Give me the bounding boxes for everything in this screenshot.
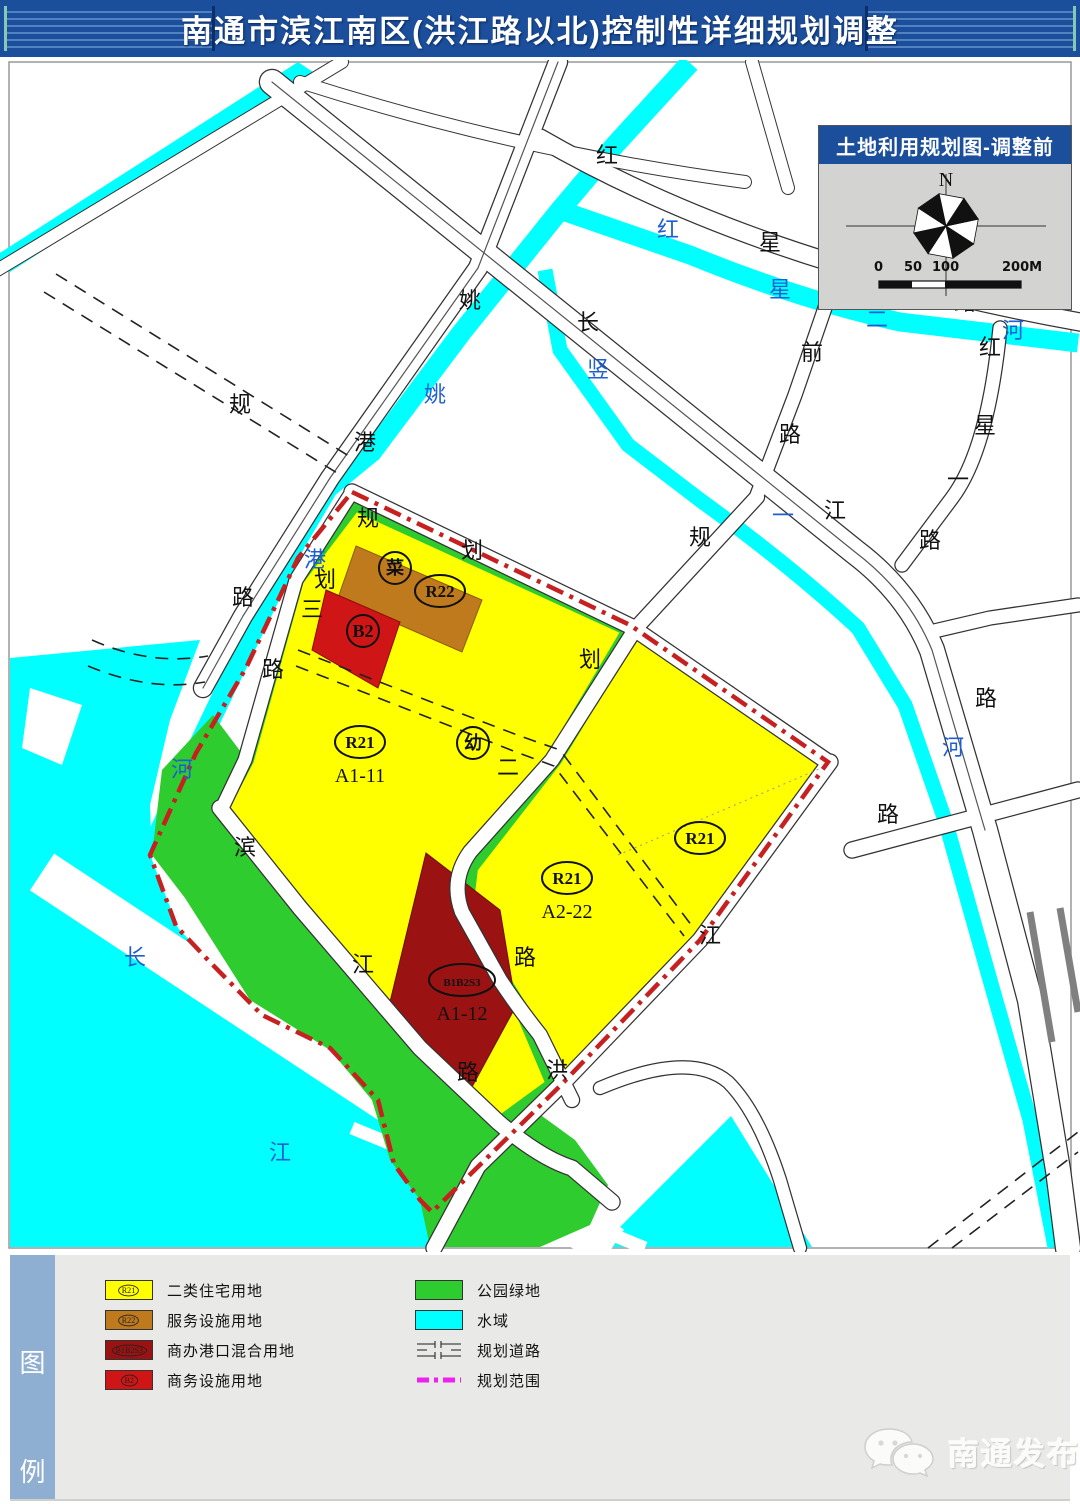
map-label: 竖: [587, 357, 609, 382]
legend-item: B2商务设施用地: [105, 1365, 295, 1395]
legend-label: 二类住宅用地: [167, 1280, 263, 1301]
map-label: 划: [579, 647, 601, 672]
map-label: 路: [262, 657, 284, 682]
legend-label: 公园绿地: [477, 1280, 541, 1301]
map-label: 路: [919, 528, 941, 553]
watermark-text: 南通发布: [948, 1429, 1080, 1474]
page-title: 南通市滨江南区(洪江路以北)控制性详细规划调整: [181, 6, 899, 51]
map-label: 路: [457, 1060, 479, 1085]
scale-tick: 100: [932, 260, 959, 275]
legend-item: 规划范围: [415, 1365, 541, 1395]
map-label: 二: [866, 307, 888, 332]
map-label: 路: [877, 802, 899, 827]
legend-column-2: 公园绿地水域规划道路规划范围: [415, 1275, 541, 1395]
map-label: 河: [1002, 318, 1024, 343]
map-label: 路: [975, 686, 997, 711]
map-label: 姚: [424, 382, 446, 407]
map-label: 路: [514, 945, 536, 970]
map-label: 红: [657, 217, 679, 242]
legend-label: 服务设施用地: [167, 1310, 263, 1331]
map-label: 三: [301, 597, 323, 622]
map-label: 红: [596, 143, 618, 168]
parcel-code: R21: [685, 829, 714, 848]
inset-body: N 0 50 100 200M: [819, 164, 1071, 309]
legend-swatch-color: R21: [105, 1280, 153, 1300]
legend-swatch-color: [415, 1280, 463, 1300]
legend-item: 规划道路: [415, 1335, 541, 1365]
map-label: 规: [689, 525, 711, 550]
map-label: 姚: [459, 288, 481, 313]
wechat-icon: [860, 1425, 938, 1477]
legend-label: 规划道路: [477, 1340, 541, 1361]
watermark: 南通发布: [860, 1425, 1080, 1477]
legend-sidebar-char: 图: [19, 1343, 45, 1380]
map-label: 江: [352, 952, 374, 977]
north-compass-rose: [914, 194, 979, 259]
map-label: 前: [801, 340, 823, 365]
parcel-subcode: A1-12: [436, 1003, 487, 1025]
legend-label: 商务设施用地: [167, 1370, 263, 1391]
map-label: 路: [779, 422, 801, 447]
legend-label: 商办港口混合用地: [167, 1340, 295, 1361]
map-label: 一: [772, 503, 794, 528]
legend-item: 水域: [415, 1305, 541, 1335]
legend-swatch-road: [415, 1340, 463, 1360]
parcel-code: B1B2S3: [443, 977, 481, 989]
north-label: N: [939, 169, 953, 191]
legend-sidebar: 图 例: [10, 1255, 55, 1499]
map-label: 规: [229, 392, 251, 417]
map-label: 河: [942, 735, 964, 760]
scale-tick: 50: [904, 260, 922, 275]
legend-label: 水域: [477, 1310, 509, 1331]
map-label: 江: [824, 498, 846, 523]
map-label: 河: [171, 757, 193, 782]
map-label: 港: [354, 430, 376, 455]
map-label: 星: [759, 230, 781, 255]
inset-panel: 土地利用规划图-调整前 N 0 50 100 200M: [818, 125, 1072, 310]
legend-swatch-boundary: [415, 1370, 463, 1390]
parcel-code: 幼: [464, 732, 482, 753]
compass-and-scale: N: [819, 164, 1071, 309]
legend-swatch-color: B1B2S3: [105, 1340, 153, 1360]
scale-tick: 200M: [1002, 260, 1042, 275]
parcel-subcode: A1-11: [335, 765, 385, 787]
legend-sidebar-char: 例: [19, 1452, 45, 1489]
parcel-code: B2: [352, 621, 373, 641]
map-label: 江: [699, 923, 721, 948]
map-label: 港: [304, 547, 326, 572]
inset-title: 土地利用规划图-调整前: [819, 126, 1071, 164]
legend-item: R22服务设施用地: [105, 1305, 295, 1335]
parcel-code: R21: [552, 869, 581, 888]
parcel-code: 菜: [385, 558, 404, 578]
legend-swatch-color: R22: [105, 1310, 153, 1330]
parcel-code: R21: [345, 733, 374, 752]
map-label: 一: [947, 467, 969, 492]
map-label: 滨: [234, 835, 256, 860]
planning-map: 红星庵路姚长前红规港星路一江路规规划划路三划路路二路滨江路江洪路红星二河竖姚一港…: [0, 60, 1080, 1252]
parcel-code: R22: [425, 582, 454, 601]
map-label: 江: [269, 1140, 291, 1165]
legend-item: B1B2S3商办港口混合用地: [105, 1335, 295, 1365]
legend-item: R21二类住宅用地: [105, 1275, 295, 1305]
map-label: 划: [461, 538, 483, 563]
map-label: 规: [357, 506, 379, 531]
map-label: 长: [124, 945, 146, 970]
legend-column-1: R21二类住宅用地R22服务设施用地B1B2S3商办港口混合用地B2商务设施用地: [105, 1275, 295, 1395]
legend-swatch-color: B2: [105, 1370, 153, 1390]
legend-item: 公园绿地: [415, 1275, 541, 1305]
legend-items: R21二类住宅用地R22服务设施用地B1B2S3商办港口混合用地B2商务设施用地…: [105, 1275, 541, 1395]
page-header: 南通市滨江南区(洪江路以北)控制性详细规划调整: [0, 0, 1080, 57]
parcel-subcode: A2-22: [541, 901, 592, 923]
scale-tick: 0: [874, 260, 883, 275]
map-label: 二: [497, 755, 519, 780]
map-label: 路: [232, 585, 254, 610]
map-label: 洪: [546, 1058, 568, 1083]
map-label: 长: [577, 310, 599, 335]
legend-swatch-color: [415, 1310, 463, 1330]
scale-bar: [879, 281, 1021, 288]
map-label: 星: [974, 413, 996, 438]
map-label: 红: [979, 335, 1001, 360]
legend-label: 规划范围: [477, 1370, 541, 1391]
map-label: 星: [769, 277, 791, 302]
